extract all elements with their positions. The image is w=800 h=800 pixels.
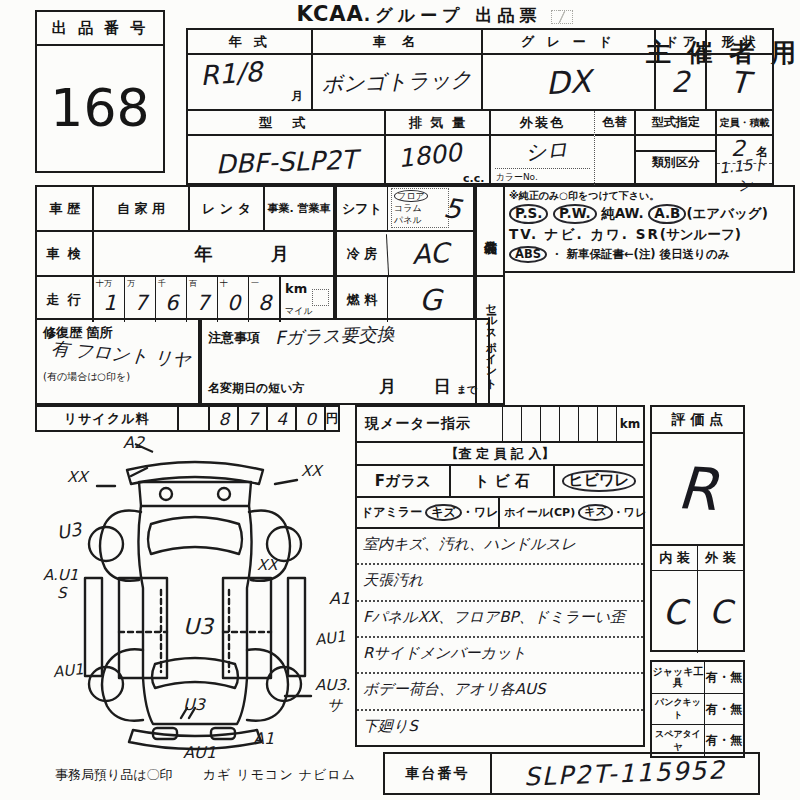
mark-s-left: S — [57, 584, 68, 602]
equipment-aw: 純AW. — [601, 205, 643, 221]
digit-value: 7 — [134, 291, 147, 315]
damage-diagram: A2 XX XX U3 A.U1 S XX U3 A1 AU1 AU1 AU3.… — [35, 428, 355, 760]
wheel-crack: ・ワレ — [613, 505, 647, 520]
mark-u3-left: U3 — [55, 518, 84, 543]
equipment-ps: P.S. — [509, 204, 548, 224]
name-change-suffix: まで — [457, 383, 477, 397]
name-change-month: 月 — [379, 375, 396, 398]
accessories-panel: ジャッキ工具 有・無 パンクキット 有・無 スペアタイヤ 有・無 — [650, 660, 745, 758]
meter-cell — [502, 407, 521, 441]
mark-au1-left-front: A.U1 — [43, 566, 78, 584]
chassis-number-label: 車台番号 — [385, 754, 492, 793]
door-mirror-crack: ・ワレ — [462, 504, 499, 521]
vehicle-table: 年 式 R1/8 月 車 名 ボンゴトラック グ レ ー ド DX ド ア 2 … — [186, 28, 774, 185]
inspection-label: 車 検 — [37, 232, 92, 275]
displacement-unit: c.c. — [463, 172, 484, 185]
interior-value: C — [652, 571, 698, 653]
mark-au1-rear: AU1 — [183, 743, 216, 760]
doors-value: 2 — [656, 55, 705, 109]
recycle-digit: 4 — [266, 407, 295, 430]
ext-color-value: シロ — [524, 135, 569, 167]
recycle-digit: 0 — [295, 407, 324, 430]
shift-label: シフト — [337, 187, 387, 230]
note-line: 天張汚れ — [357, 565, 643, 601]
pencil-mark — [551, 10, 573, 24]
year-unit: 月 — [291, 88, 303, 105]
auction-sheet: KCAA.グループ 出品票 主 催 者 用 出 品 番 号 168 年 式 R1… — [0, 0, 800, 800]
business-option: 事業. 営業車 — [263, 187, 333, 230]
meter-label: 現メーター指示 — [357, 407, 502, 441]
meter-cell — [521, 407, 540, 441]
wheel-row: ホイール(CP) キズ・ワレ — [500, 498, 646, 527]
digit-header: 十 — [220, 278, 228, 289]
recycle-digit: 7 — [237, 407, 266, 430]
equipment-warranty: ・ 新車保証書←(注) 後日送りのみ — [551, 247, 729, 261]
digit-header: 一 — [251, 278, 259, 289]
chassis-number-row: 車台番号 SLP2T-115952 — [383, 752, 760, 795]
note-line: Rサイドメンバーカット — [357, 638, 643, 674]
digit-header: 百 — [189, 278, 197, 289]
sheet-title: KCAA.グループ 出品票 — [270, 2, 600, 27]
digit-header: 万 — [127, 278, 135, 289]
footer-note: 事務局預り品は〇印 カギ リモコン ナビロム — [55, 766, 356, 784]
fuel-value: G — [387, 277, 473, 322]
note-line: 室内キズ、汚れ、ハンドルスレ — [357, 529, 643, 565]
equipment-line2: TV. ナビ. カワ. SR(サンルーフ) — [509, 226, 789, 244]
equipment-pw: P.W. — [553, 204, 596, 224]
inspection-month-unit: 月 — [271, 242, 289, 266]
equipment-sr-note: (サンルーフ) — [660, 226, 741, 242]
chassis-number-value: SLP2T-115952 — [491, 749, 758, 797]
shape-label: 形 状 — [707, 30, 772, 55]
name-change-label: 名変期日の短い方 — [208, 380, 305, 397]
lot-number-value: 168 — [37, 46, 163, 170]
mark-xx-front-right: XX — [301, 462, 324, 480]
inspection-year-unit: 年 — [194, 242, 212, 266]
rental-option: レ ン タ — [188, 187, 263, 230]
mark-au3-right: AU3. — [315, 676, 351, 694]
jack-tools-value: 有・無 — [705, 662, 743, 693]
note-line: FパネルXX、フロアBP、ドミラーい歪 — [357, 602, 643, 638]
unit-checkbox — [312, 289, 329, 306]
door-mirror-row: ドアミラー キズ・ワレ — [357, 498, 500, 527]
mark-xx-front-left: XX — [67, 468, 90, 486]
jack-tools-label: ジャッキ工具 — [652, 662, 705, 693]
type-designation-label: 型式指定 — [636, 111, 715, 136]
capacity-label: 定員・積載 — [717, 111, 772, 136]
equipment-kawa: カワ. — [590, 226, 629, 242]
equipment-ab-note: (エアバッグ) — [686, 205, 767, 221]
fuel-label: 燃 料 — [337, 277, 387, 322]
caution-label: 注意事項 — [208, 330, 260, 345]
ac-value: AC — [386, 230, 474, 277]
title-text: .グループ 出品票 — [364, 5, 542, 25]
puncture-kit-value: 有・無 — [705, 694, 743, 725]
shift-options: フロア コラム パネル — [391, 188, 449, 228]
car-history-label: 車 歴 — [37, 187, 92, 230]
mark-au1-right: AU1 — [314, 627, 347, 649]
mileage-digits: 十万1 万7 千6 百7 十0 一8 km マイル — [92, 277, 333, 322]
digit-value: 8 — [258, 291, 271, 315]
digit-header: 十万 — [96, 278, 112, 289]
mark-a1-rear: A1 — [253, 729, 274, 748]
mark-sa-right: サ — [327, 696, 343, 714]
equipment-vertical-label: 装備品 — [477, 187, 503, 277]
inspector-entry-header: 【査 定 員 記 入】 — [357, 443, 643, 466]
mile-unit: マイル — [285, 305, 313, 318]
meter-cell — [578, 407, 597, 441]
model-value: DBF-SLP2T — [187, 133, 385, 191]
color-no-label: カラーNo. — [495, 168, 590, 184]
office-items-list: カギ リモコン ナビロム — [203, 767, 356, 782]
model-label: 型 式 — [188, 111, 384, 136]
equipment-tv: TV. — [509, 226, 538, 242]
mark-xx-bed: XX — [257, 556, 280, 574]
mark-au1-left-rear: AU1 — [52, 660, 85, 681]
caution-value: Fガラス要交換 — [275, 322, 395, 350]
color-change-label: 色替 — [595, 111, 635, 136]
recycle-digit: 8 — [208, 407, 237, 430]
equipment-navi: ナビ. — [545, 226, 584, 242]
door-mirror-scratch: キズ — [425, 504, 462, 522]
note-line: 下廻りS — [357, 711, 643, 745]
recycle-unit: 円 — [324, 407, 338, 430]
history-table: 車 歴 自 家 用 レ ン タ 事業. 営業車 車 検 年 月 走 行 十万1 … — [35, 185, 335, 320]
ac-label: 冷 房 — [337, 232, 387, 275]
mark-u3-bed: U3 — [183, 614, 215, 639]
grade-value: DX — [482, 51, 655, 114]
exterior-label: 外 装 — [698, 546, 743, 570]
fglass-label: Fガラス — [357, 466, 451, 496]
equipment-box: ※純正のみ○印をつけて下さい。 P.S. P.W. 純AW. A.B(エアバッグ… — [505, 185, 795, 273]
equipment-sr: SR — [636, 226, 660, 242]
truck-top-view: A2 XX XX U3 A.U1 S XX U3 A1 AU1 AU1 AU3.… — [35, 428, 355, 760]
rating-panel: 評 価 点 R 内 装 外 装 C C — [650, 405, 745, 652]
equipment-strip: 装備品 セールスポイント — [475, 185, 505, 405]
mark-a2: A2 — [123, 433, 146, 452]
puncture-kit-label: パンクキット — [652, 694, 705, 725]
rating-label: 評 価 点 — [652, 407, 743, 434]
wheel-label: ホイール(CP) — [504, 505, 575, 520]
car-name-label: 車 名 — [313, 30, 481, 55]
equipment-line3: ABS ・ 新車保証書←(注) 後日送りのみ — [509, 246, 789, 263]
shift-value: 5 — [442, 192, 463, 225]
shift-option-column: コラム — [394, 203, 422, 213]
meter-cell — [559, 407, 578, 441]
year-label: 年 式 — [188, 30, 311, 55]
digit-value: 7 — [196, 291, 209, 315]
year-value: R1/8 — [199, 56, 263, 91]
brand-logo: KCAA — [297, 2, 364, 26]
shift-option-panel: パネル — [394, 215, 422, 225]
door-mirror-label: ドアミラー — [361, 504, 422, 521]
note-line: ボデー荷台、アオリ各AUS — [357, 674, 643, 710]
fglass-option-crack: ヒビワレ — [562, 470, 635, 491]
shape-value: T — [705, 53, 774, 111]
equipment-note: ※純正のみ○印をつけて下さい。 — [509, 189, 789, 203]
meter-cell — [540, 407, 559, 441]
class-section-label: 類別区分 — [636, 150, 715, 172]
mark-a1-right: A1 — [329, 589, 350, 608]
repair-history-box: 修復歴 箇所 有 フロント リヤ (有の場合は○印を) — [35, 318, 200, 405]
name-change-day: 日 — [434, 375, 451, 398]
meter-cell — [597, 407, 616, 441]
km-unit: km — [285, 281, 307, 296]
private-use-option: 自 家 用 — [92, 187, 188, 230]
shift-option-floor: フロア — [394, 190, 428, 202]
sales-point-vertical-label: セールスポイント — [477, 277, 503, 403]
digit-header: 千 — [158, 278, 166, 289]
rating-value: R — [649, 432, 746, 547]
exterior-value: C — [698, 571, 743, 653]
specs-table: シフト フロア コラム パネル 5 冷 房 AC 燃 料 G — [335, 185, 475, 320]
wheel-scratch: キズ — [578, 504, 613, 521]
ext-color-label: 外装色 — [491, 111, 593, 136]
office-items-note: 事務局預り品は〇印 — [55, 767, 173, 782]
digit-value: 1 — [103, 291, 116, 315]
displacement-label: 排 気 量 — [386, 111, 489, 136]
equipment-abs: ABS — [509, 246, 547, 263]
lot-number-label: 出 品 番 号 — [37, 12, 163, 46]
digit-value: 0 — [227, 291, 240, 315]
displacement-value: 1800 — [397, 138, 463, 173]
inspector-notes: 室内キズ、汚れ、ハンドルスレ 天張汚れ FパネルXX、フロアBP、ドミラーい歪 … — [357, 529, 643, 745]
fglass-option-stone: ト ビ 石 — [451, 466, 555, 496]
equipment-line1: P.S. P.W. 純AW. A.B(エアバッグ) — [509, 204, 789, 224]
interior-label: 内 装 — [652, 546, 698, 570]
meter-unit: km — [616, 407, 643, 441]
caution-box: 注意事項 Fガラス要交換 名変期日の短い方 月 日 まで — [200, 318, 490, 405]
doors-label: ド ア — [656, 30, 705, 55]
recycle-fee-label: リサイクル料 — [37, 407, 177, 430]
car-name-value: ボンゴトラック — [312, 52, 481, 112]
inspector-panel: 現メーター指示 km 【査 定 員 記 入】 Fガラス ト ビ 石 ヒビワレ ド… — [355, 405, 645, 747]
mark-u3-rear: U3 — [183, 695, 207, 714]
mileage-label: 走 行 — [37, 277, 92, 322]
digit-value: 6 — [165, 291, 178, 315]
lot-number-box: 出 品 番 号 168 — [35, 10, 165, 173]
equipment-ab: A.B — [648, 204, 686, 224]
